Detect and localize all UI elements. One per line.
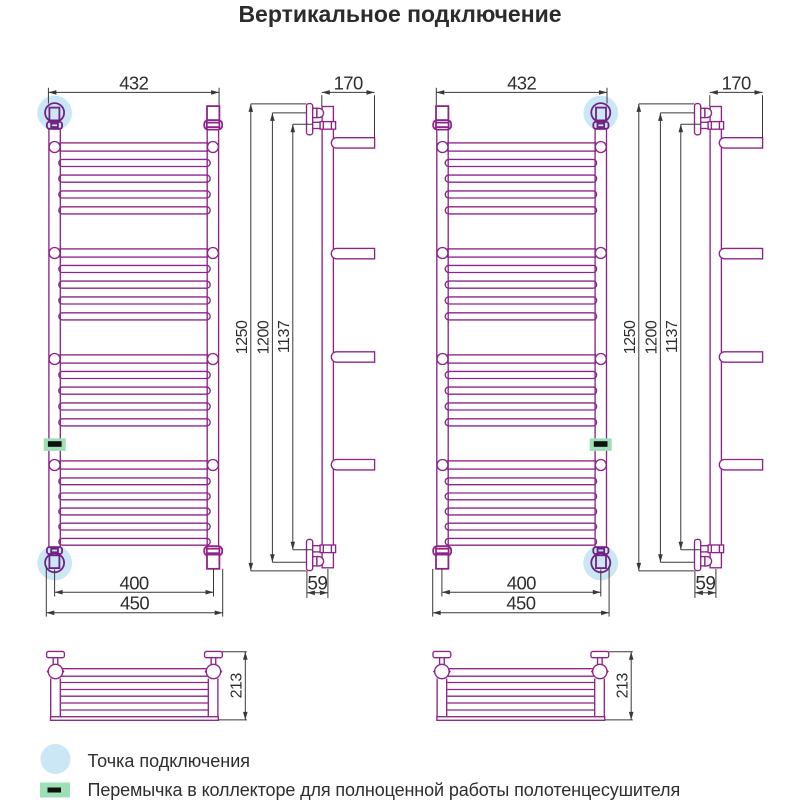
svg-text:450: 450 bbox=[506, 593, 535, 614]
svg-text:1250: 1250 bbox=[622, 320, 639, 354]
svg-text:213: 213 bbox=[614, 673, 631, 699]
svg-text:400: 400 bbox=[120, 572, 149, 593]
svg-text:1200: 1200 bbox=[643, 320, 660, 354]
svg-text:170: 170 bbox=[722, 73, 751, 94]
svg-text:59: 59 bbox=[695, 573, 715, 594]
svg-text:59: 59 bbox=[307, 573, 327, 594]
svg-text:170: 170 bbox=[334, 73, 363, 94]
svg-text:432: 432 bbox=[119, 73, 148, 94]
svg-text:450: 450 bbox=[120, 593, 149, 614]
svg-text:Точка подключения: Точка подключения bbox=[88, 751, 251, 771]
svg-text:1137: 1137 bbox=[276, 320, 293, 353]
svg-text:Вертикальное подключение: Вертикальное подключение bbox=[238, 1, 561, 27]
svg-text:1200: 1200 bbox=[255, 320, 272, 354]
svg-text:Перемычка в коллекторе для пол: Перемычка в коллекторе для полноценной р… bbox=[88, 780, 681, 800]
svg-text:1250: 1250 bbox=[234, 320, 251, 354]
svg-text:213: 213 bbox=[229, 673, 246, 699]
svg-text:432: 432 bbox=[507, 73, 536, 94]
svg-text:1137: 1137 bbox=[664, 320, 681, 353]
svg-text:400: 400 bbox=[507, 572, 536, 593]
